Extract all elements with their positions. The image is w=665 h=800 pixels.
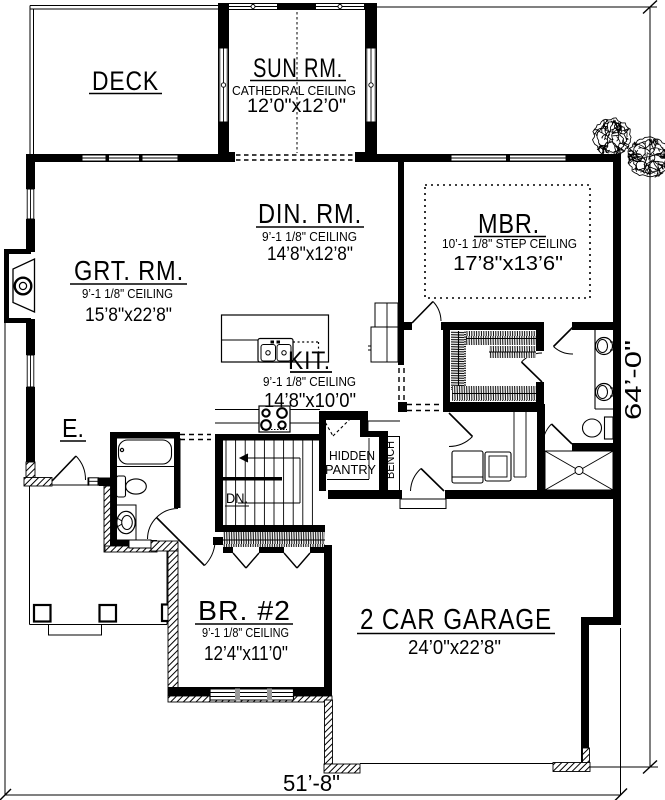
svg-text:PANTRY: PANTRY <box>325 463 377 477</box>
svg-text:SUN RM.: SUN RM. <box>253 53 343 83</box>
svg-text:51’-8": 51’-8" <box>283 770 340 796</box>
svg-text:9’-1 1/8" CEILING: 9’-1 1/8" CEILING <box>262 229 357 244</box>
svg-text:GRT. RM.: GRT. RM. <box>74 255 184 286</box>
svg-text:17’8"x13’6": 17’8"x13’6" <box>453 253 563 275</box>
svg-text:E.: E. <box>62 413 84 443</box>
svg-text:24’0"x22’8": 24’0"x22’8" <box>408 637 501 659</box>
svg-text:DECK: DECK <box>92 66 159 96</box>
svg-text:9’-1 1/8" CEILING: 9’-1 1/8" CEILING <box>202 625 289 640</box>
svg-text:KIT.: KIT. <box>288 347 331 375</box>
svg-text:2 CAR GARAGE: 2 CAR GARAGE <box>360 604 552 636</box>
svg-text:HIDDEN: HIDDEN <box>329 449 375 463</box>
svg-text:DN.: DN. <box>226 491 248 506</box>
svg-text:BENCH: BENCH <box>385 441 397 479</box>
svg-text:10’-1 1/8" STEP CEILING: 10’-1 1/8" STEP CEILING <box>442 236 577 251</box>
svg-text:14’8"x12’8": 14’8"x12’8" <box>267 244 353 265</box>
svg-text:9’-1 1/8" CEILING: 9’-1 1/8" CEILING <box>82 286 173 301</box>
svg-text:MBR.: MBR. <box>478 208 540 239</box>
svg-text:64’-0": 64’-0" <box>620 340 646 420</box>
svg-text:DIN. RM.: DIN. RM. <box>258 198 362 229</box>
svg-text:14’8"x10’0": 14’8"x10’0" <box>264 390 356 412</box>
svg-text:9’-1 1/8" CEILING: 9’-1 1/8" CEILING <box>263 374 356 389</box>
svg-text:12’4"x11’0": 12’4"x11’0" <box>204 643 288 665</box>
svg-text:15’8"x22’8": 15’8"x22’8" <box>85 305 172 326</box>
svg-text:12’0"x12’0": 12’0"x12’0" <box>247 95 346 117</box>
svg-text:BR. #2: BR. #2 <box>198 595 291 626</box>
